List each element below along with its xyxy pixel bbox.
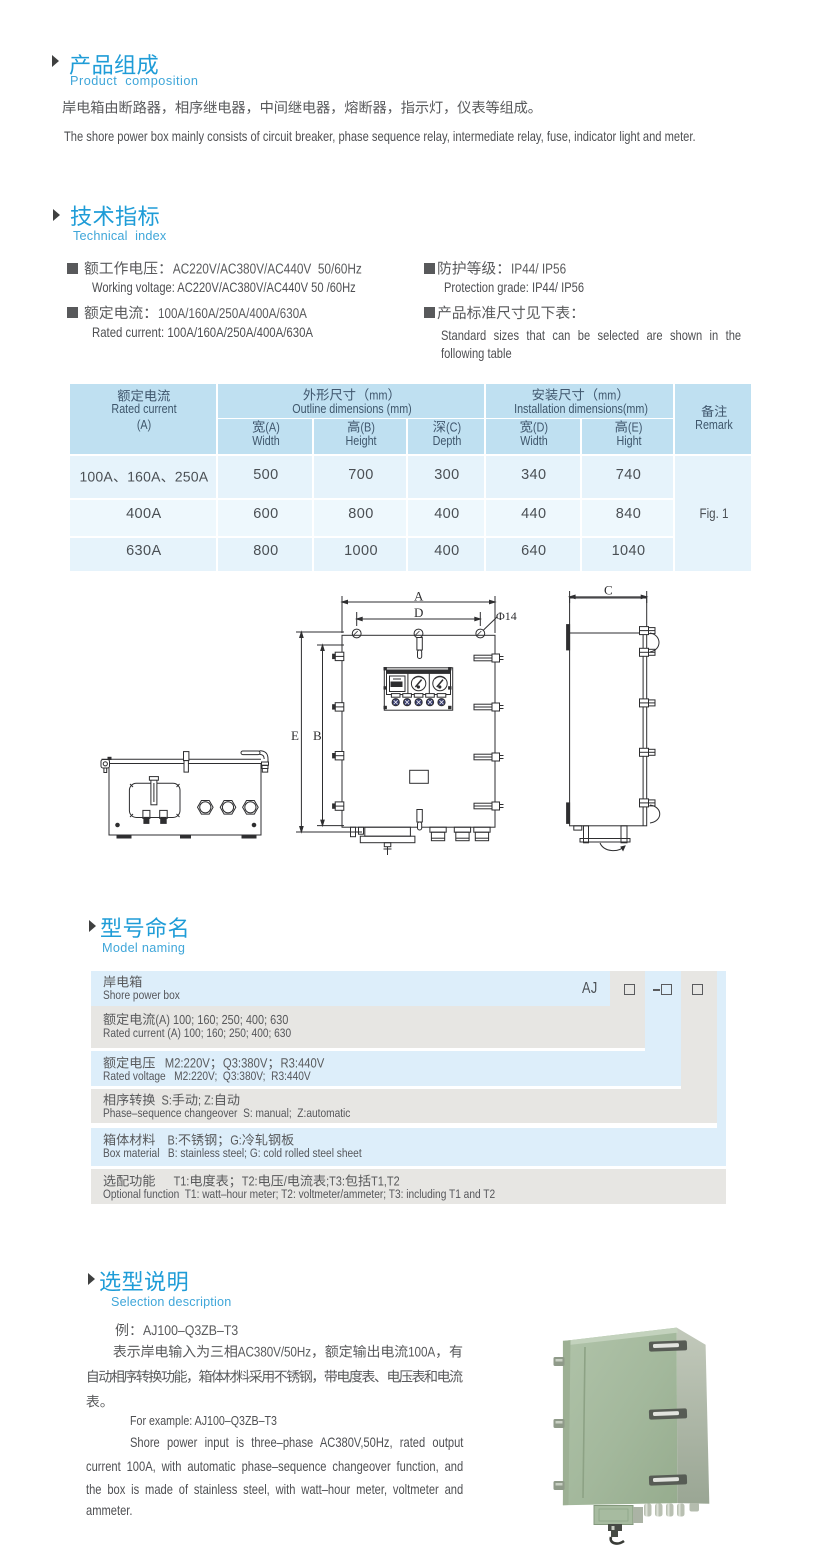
svg-text:C: C xyxy=(604,583,613,598)
svg-text:A: A xyxy=(414,589,424,604)
svg-text:Φ14: Φ14 xyxy=(496,609,517,623)
svg-text:B: B xyxy=(313,728,322,743)
svg-text:E: E xyxy=(291,728,299,743)
svg-text:D: D xyxy=(414,605,423,620)
